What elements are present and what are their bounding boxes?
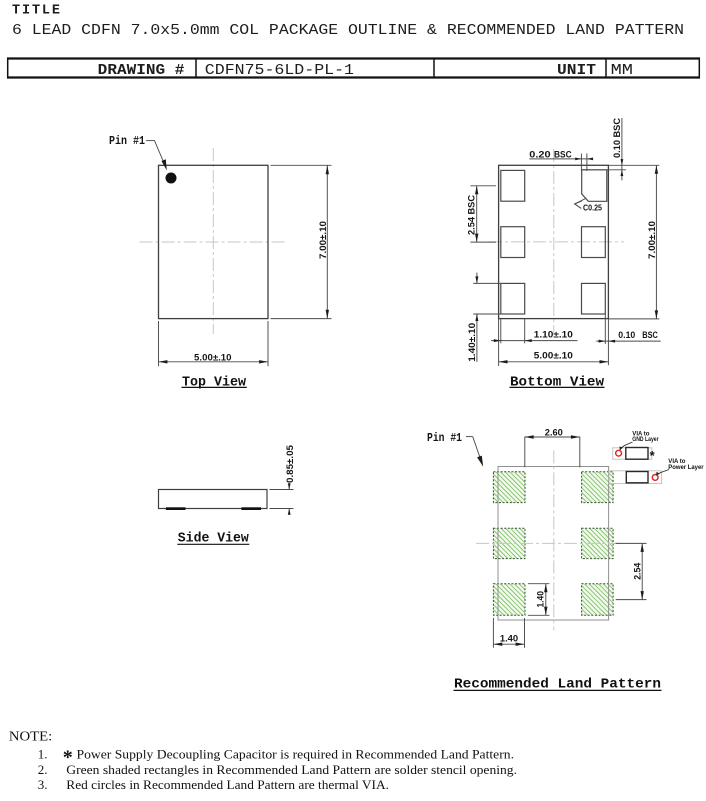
svg-text:NOTE:: NOTE: bbox=[9, 728, 52, 743]
svg-text:BSC: BSC bbox=[554, 149, 572, 160]
svg-text:3.: 3. bbox=[38, 777, 48, 792]
svg-text:MM: MM bbox=[611, 62, 633, 79]
svg-text:1.10±.10: 1.10±.10 bbox=[534, 329, 573, 340]
svg-text:Pin #1: Pin #1 bbox=[427, 432, 462, 445]
svg-text:Pin #1: Pin #1 bbox=[109, 135, 145, 148]
svg-text:7.00±.10: 7.00±.10 bbox=[647, 221, 658, 259]
svg-text:Red circles in Recommended Lan: Red circles in Recommended Land Pattern … bbox=[66, 777, 389, 792]
svg-text:0.10: 0.10 bbox=[618, 330, 635, 341]
svg-text:2.60: 2.60 bbox=[545, 427, 563, 438]
svg-text:C0.25: C0.25 bbox=[583, 203, 602, 212]
svg-text:2.54: 2.54 bbox=[633, 562, 644, 580]
svg-text:0.10 BSC: 0.10 BSC bbox=[612, 118, 623, 158]
svg-text:1.40: 1.40 bbox=[500, 633, 518, 644]
svg-text:7.00±.10: 7.00±.10 bbox=[318, 221, 329, 259]
svg-text:Power Supply Decoupling Capaci: Power Supply Decoupling Capacitor is req… bbox=[77, 747, 515, 762]
svg-text:1.: 1. bbox=[38, 747, 48, 762]
svg-text:UNIT: UNIT bbox=[557, 62, 596, 79]
svg-text:1.40±.10: 1.40±.10 bbox=[467, 323, 477, 362]
svg-text:5.00±.10: 5.00±.10 bbox=[534, 350, 573, 361]
svg-text:Bottom View: Bottom View bbox=[510, 375, 605, 391]
svg-text:1.40: 1.40 bbox=[536, 591, 547, 608]
svg-text:GND Layer: GND Layer bbox=[632, 437, 659, 443]
svg-text:Top View: Top View bbox=[182, 375, 247, 391]
svg-text:BSC: BSC bbox=[642, 330, 658, 341]
svg-text:2.54 BSC: 2.54 BSC bbox=[467, 194, 477, 235]
svg-text:5.00±.10: 5.00±.10 bbox=[194, 352, 232, 363]
svg-text:TITLE: TITLE bbox=[12, 4, 60, 19]
svg-text:Green shaded rectangles in Rec: Green shaded rectangles in Recommended L… bbox=[66, 762, 517, 777]
svg-text:6 LEAD CDFN 7.0x5.0mm COL PACK: 6 LEAD CDFN 7.0x5.0mm COL PACKAGE OUTLIN… bbox=[12, 22, 684, 39]
svg-text:DRAWING #: DRAWING # bbox=[98, 62, 185, 79]
svg-text:Power Layer: Power Layer bbox=[668, 465, 704, 471]
svg-text:*: * bbox=[650, 448, 656, 463]
svg-text:0.85±.05: 0.85±.05 bbox=[285, 445, 295, 483]
svg-text:0.20: 0.20 bbox=[529, 149, 550, 160]
svg-text:2.: 2. bbox=[38, 762, 48, 777]
svg-text:CDFN75-6LD-PL-1: CDFN75-6LD-PL-1 bbox=[205, 62, 354, 79]
